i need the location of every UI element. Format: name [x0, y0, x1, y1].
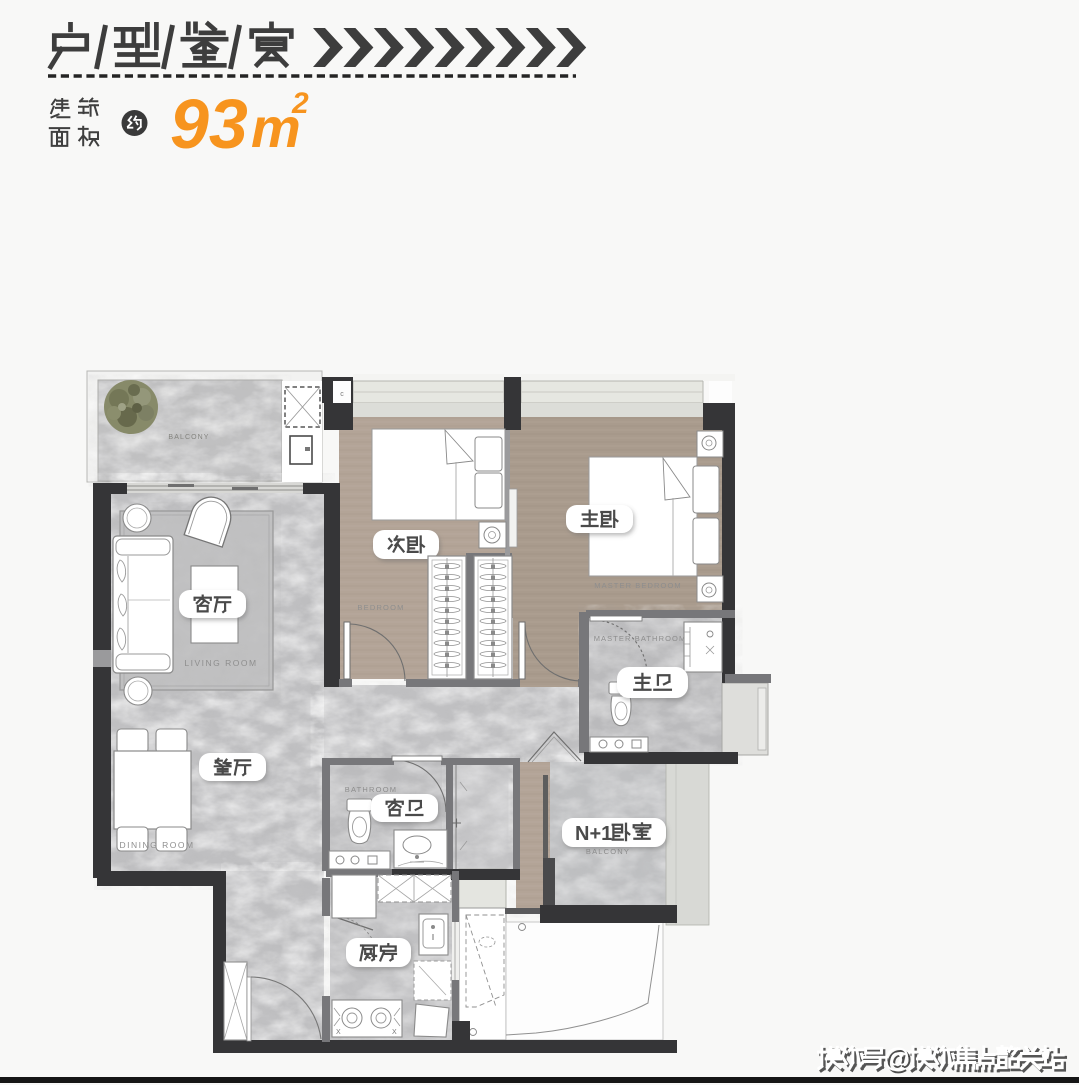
- svg-text:c: c: [340, 391, 344, 398]
- svg-text:MASTER BEDROOM: MASTER BEDROOM: [594, 581, 682, 590]
- svg-text:X: X: [392, 1029, 397, 1036]
- svg-text:BATHROOM: BATHROOM: [345, 785, 397, 794]
- svg-text:N+1: N+1: [575, 823, 612, 845]
- svg-text:MASTER BATHROOM: MASTER BATHROOM: [594, 634, 687, 643]
- svg-text:BALCONY: BALCONY: [168, 434, 209, 441]
- svg-text:BEDROOM: BEDROOM: [357, 603, 404, 612]
- svg-text:@: @: [884, 1043, 910, 1073]
- svg-text:X: X: [336, 1029, 341, 1036]
- svg-text:LIVING ROOM: LIVING ROOM: [184, 658, 257, 668]
- svg-text:93: 93: [170, 85, 248, 163]
- svg-text:BALCONY: BALCONY: [586, 847, 630, 856]
- svg-text:DINING ROOM: DINING ROOM: [119, 840, 194, 850]
- svg-text:2: 2: [291, 87, 309, 120]
